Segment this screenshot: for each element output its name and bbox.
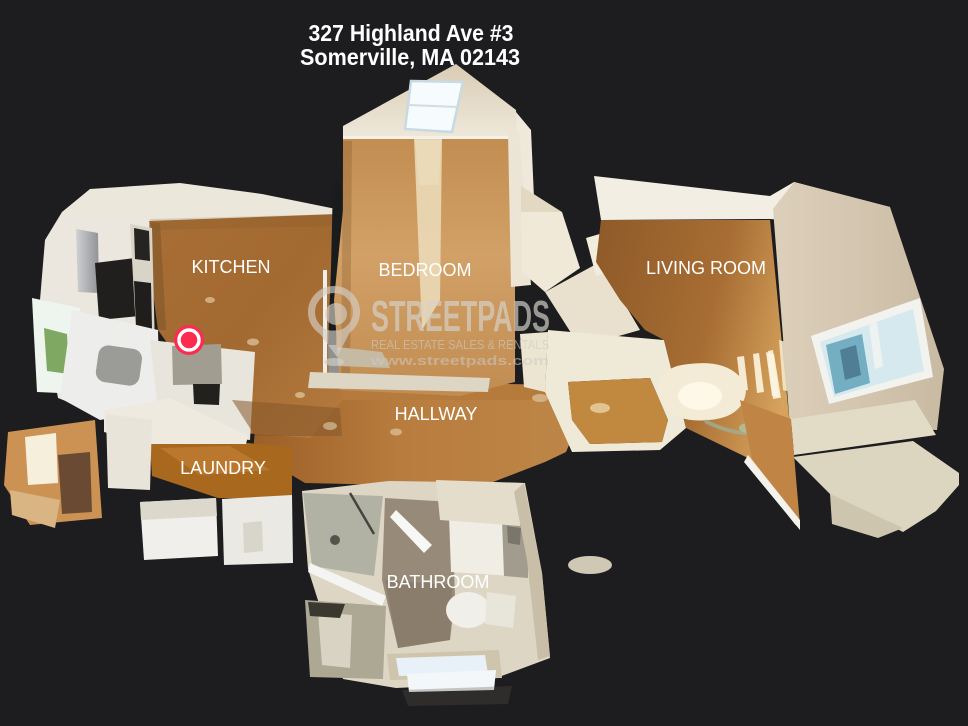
svg-text:LIVING ROOM: LIVING ROOM (646, 258, 766, 278)
svg-text:STREETPADS: STREETPADS (371, 292, 550, 341)
svg-text:LAUNDRY: LAUNDRY (180, 458, 266, 478)
svg-text:www.streetpads.com: www.streetpads.com (370, 353, 549, 368)
svg-text:327 Highland Ave #3: 327 Highland Ave #3 (309, 20, 514, 46)
svg-text:KITCHEN: KITCHEN (191, 257, 270, 277)
svg-text:BEDROOM: BEDROOM (378, 260, 471, 280)
svg-text:REAL ESTATE SALES & RENTALS: REAL ESTATE SALES & RENTALS (371, 338, 549, 352)
svg-text:BATHROOM: BATHROOM (387, 572, 490, 592)
svg-text:Somerville, MA 02143: Somerville, MA 02143 (300, 44, 520, 70)
svg-text:HALLWAY: HALLWAY (395, 404, 478, 424)
